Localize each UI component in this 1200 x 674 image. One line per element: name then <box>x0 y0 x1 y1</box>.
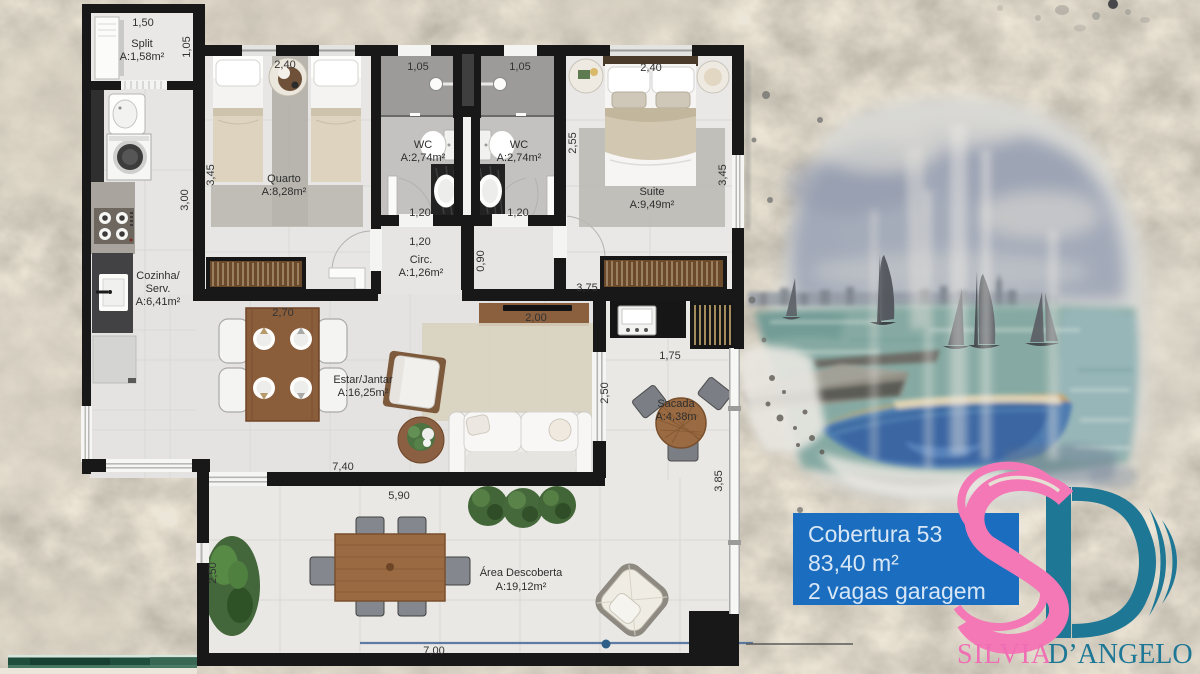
svg-text:WC: WC <box>414 139 432 151</box>
svg-text:A:1,58m²: A:1,58m² <box>120 51 165 63</box>
svg-text:1,05: 1,05 <box>181 36 193 57</box>
svg-text:1,05: 1,05 <box>407 61 428 73</box>
svg-text:1,50: 1,50 <box>132 17 153 29</box>
svg-text:A:2,74m²: A:2,74m² <box>401 152 446 164</box>
svg-text:5,90: 5,90 <box>388 490 409 502</box>
svg-text:Split: Split <box>131 38 152 50</box>
svg-text:2 vagas garagem: 2 vagas garagem <box>808 578 986 604</box>
svg-text:Suite: Suite <box>639 186 664 198</box>
svg-text:3,45: 3,45 <box>717 164 729 185</box>
svg-text:3,75: 3,75 <box>576 282 597 294</box>
svg-text:2,50: 2,50 <box>207 562 219 583</box>
svg-text:Quarto: Quarto <box>267 173 301 185</box>
svg-text:Área Descoberta: Área Descoberta <box>480 566 563 579</box>
svg-text:Sacada: Sacada <box>657 398 695 410</box>
svg-text:83,40 m²: 83,40 m² <box>808 550 899 576</box>
svg-text:3,45: 3,45 <box>205 164 217 185</box>
svg-text:A:16,25m²: A:16,25m² <box>338 387 389 399</box>
svg-text:SILVIA: SILVIA <box>957 639 1052 670</box>
svg-text:3,85: 3,85 <box>713 470 725 491</box>
svg-text:A:4,38m: A:4,38m <box>656 411 697 423</box>
svg-text:A:6,41m²: A:6,41m² <box>136 296 181 308</box>
svg-text:1,75: 1,75 <box>659 350 680 362</box>
svg-text:2,70: 2,70 <box>272 307 293 319</box>
svg-text:1,05: 1,05 <box>509 61 530 73</box>
svg-text:Serv.: Serv. <box>146 283 171 295</box>
svg-text:A:1,26m²: A:1,26m² <box>399 267 444 279</box>
svg-text:A:9,49m²: A:9,49m² <box>630 199 675 211</box>
svg-text:Estar/Jantar: Estar/Jantar <box>333 374 393 386</box>
svg-text:1,20: 1,20 <box>409 236 430 248</box>
svg-text:A:2,74m²: A:2,74m² <box>497 152 542 164</box>
svg-text:7,40: 7,40 <box>332 461 353 473</box>
svg-text:Cozinha/: Cozinha/ <box>136 270 180 282</box>
svg-text:A:8,28m²: A:8,28m² <box>262 186 307 198</box>
svg-text:2,40: 2,40 <box>274 59 295 71</box>
svg-text:1,20: 1,20 <box>507 207 528 219</box>
svg-text:2,00: 2,00 <box>525 312 546 324</box>
svg-text:2,55: 2,55 <box>567 132 579 153</box>
svg-text:A:19,12m²: A:19,12m² <box>496 581 547 593</box>
svg-text:2,50: 2,50 <box>599 382 611 403</box>
svg-text:Circ.: Circ. <box>410 254 433 266</box>
svg-text:0,90: 0,90 <box>475 250 487 271</box>
svg-text:1,20: 1,20 <box>409 207 430 219</box>
svg-text:D’ANGELO: D’ANGELO <box>1048 639 1193 670</box>
svg-text:Cobertura 53: Cobertura 53 <box>808 521 942 547</box>
svg-text:7,00: 7,00 <box>423 645 444 657</box>
svg-text:2,40: 2,40 <box>640 62 661 74</box>
svg-text:WC: WC <box>510 139 528 151</box>
svg-text:3,00: 3,00 <box>179 189 191 210</box>
